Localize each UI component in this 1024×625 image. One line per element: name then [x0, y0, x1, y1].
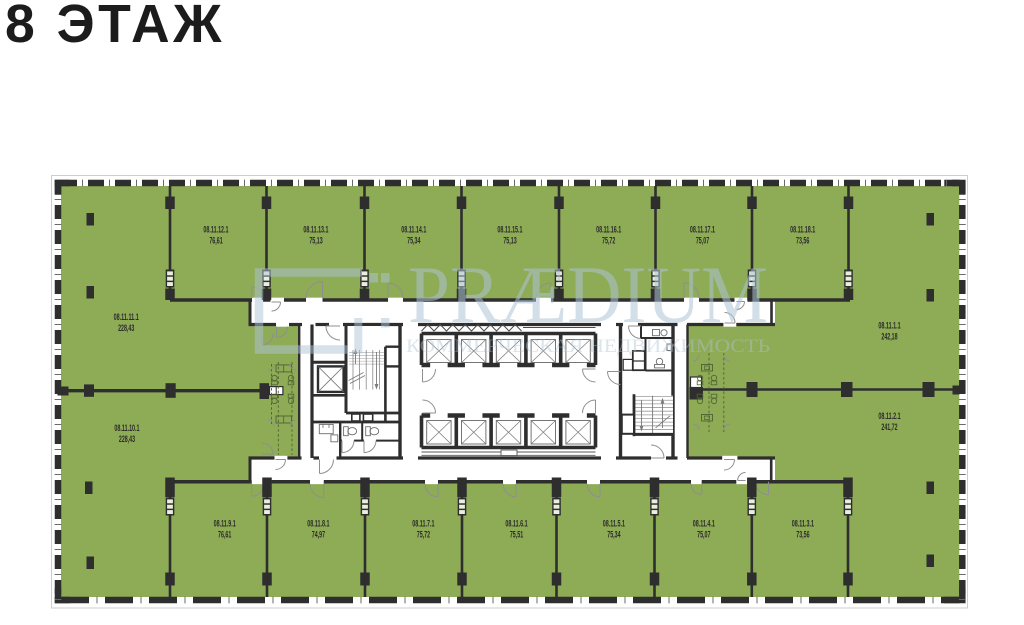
- svg-text:75,34: 75,34: [607, 530, 620, 540]
- svg-text:08.11.15.1: 08.11.15.1: [497, 225, 522, 235]
- svg-text:75,51: 75,51: [510, 530, 523, 540]
- svg-text:PRÆDIUM: PRÆDIUM: [408, 249, 768, 340]
- svg-text:75,13: 75,13: [503, 236, 516, 246]
- svg-text:75,72: 75,72: [417, 530, 430, 540]
- svg-text:74,97: 74,97: [312, 530, 325, 540]
- svg-text:73,56: 73,56: [796, 530, 809, 540]
- svg-text:08.11.10.1: 08.11.10.1: [114, 423, 139, 433]
- svg-text:76,61: 76,61: [209, 236, 222, 246]
- svg-text:75,07: 75,07: [697, 530, 710, 540]
- svg-text:08.11.18.1: 08.11.18.1: [790, 225, 815, 235]
- svg-text:241,72: 241,72: [881, 422, 897, 432]
- svg-text:08.11.14.1: 08.11.14.1: [401, 225, 426, 235]
- svg-text:8 ЭТАЖ: 8 ЭТАЖ: [5, 0, 225, 54]
- svg-text:08.11.2.1: 08.11.2.1: [878, 411, 900, 421]
- svg-text:08.11.11.1: 08.11.11.1: [114, 312, 139, 322]
- svg-text:228,43: 228,43: [119, 434, 135, 444]
- svg-text:08.11.1.1: 08.11.1.1: [878, 321, 900, 331]
- svg-text:75,34: 75,34: [407, 236, 420, 246]
- svg-text:08.11.13.1: 08.11.13.1: [303, 225, 328, 235]
- svg-text:08.11.9.1: 08.11.9.1: [214, 519, 236, 529]
- svg-text:КОММЕРЧЕСКАЯ НЕДВИЖИМОСТЬ: КОММЕРЧЕСКАЯ НЕДВИЖИМОСТЬ: [406, 336, 770, 357]
- svg-text:08.11.12.1: 08.11.12.1: [203, 225, 228, 235]
- svg-text:75,07: 75,07: [696, 236, 709, 246]
- svg-text:08.11.7.1: 08.11.7.1: [412, 519, 434, 529]
- svg-text:08.11.4.1: 08.11.4.1: [693, 519, 715, 529]
- svg-text:242,18: 242,18: [881, 332, 897, 342]
- svg-text:76,61: 76,61: [218, 530, 231, 540]
- svg-text:08.11.17.1: 08.11.17.1: [690, 225, 715, 235]
- svg-text:08.11.5.1: 08.11.5.1: [603, 519, 625, 529]
- svg-text:73,56: 73,56: [796, 236, 809, 246]
- svg-text:75,72: 75,72: [602, 236, 615, 246]
- svg-text:228,43: 228,43: [118, 323, 134, 333]
- svg-text:08.11.8.1: 08.11.8.1: [307, 519, 329, 529]
- svg-text:08.11.6.1: 08.11.6.1: [505, 519, 527, 529]
- svg-text:75,13: 75,13: [309, 236, 322, 246]
- svg-text:08.11.16.1: 08.11.16.1: [596, 225, 621, 235]
- svg-text:08.11.3.1: 08.11.3.1: [792, 519, 814, 529]
